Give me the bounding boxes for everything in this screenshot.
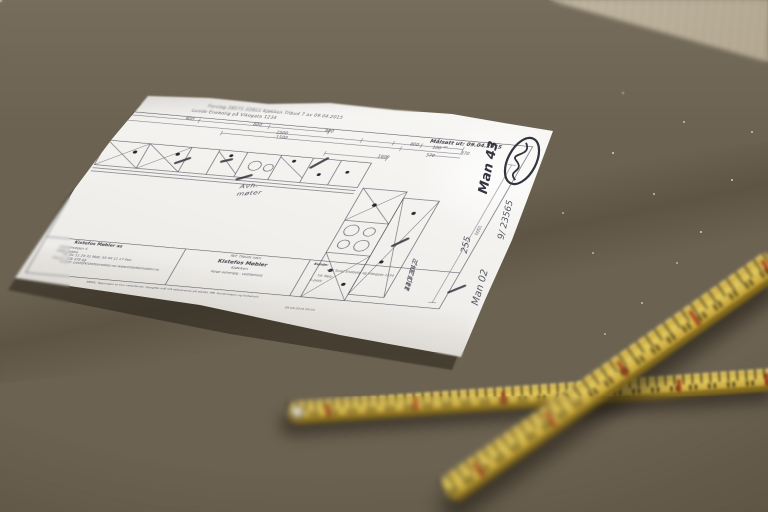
photo-scene: Forslag 28171 22811 Kjøkken Tilbud 7 av … xyxy=(0,0,768,512)
vignette-overlay xyxy=(0,0,768,512)
